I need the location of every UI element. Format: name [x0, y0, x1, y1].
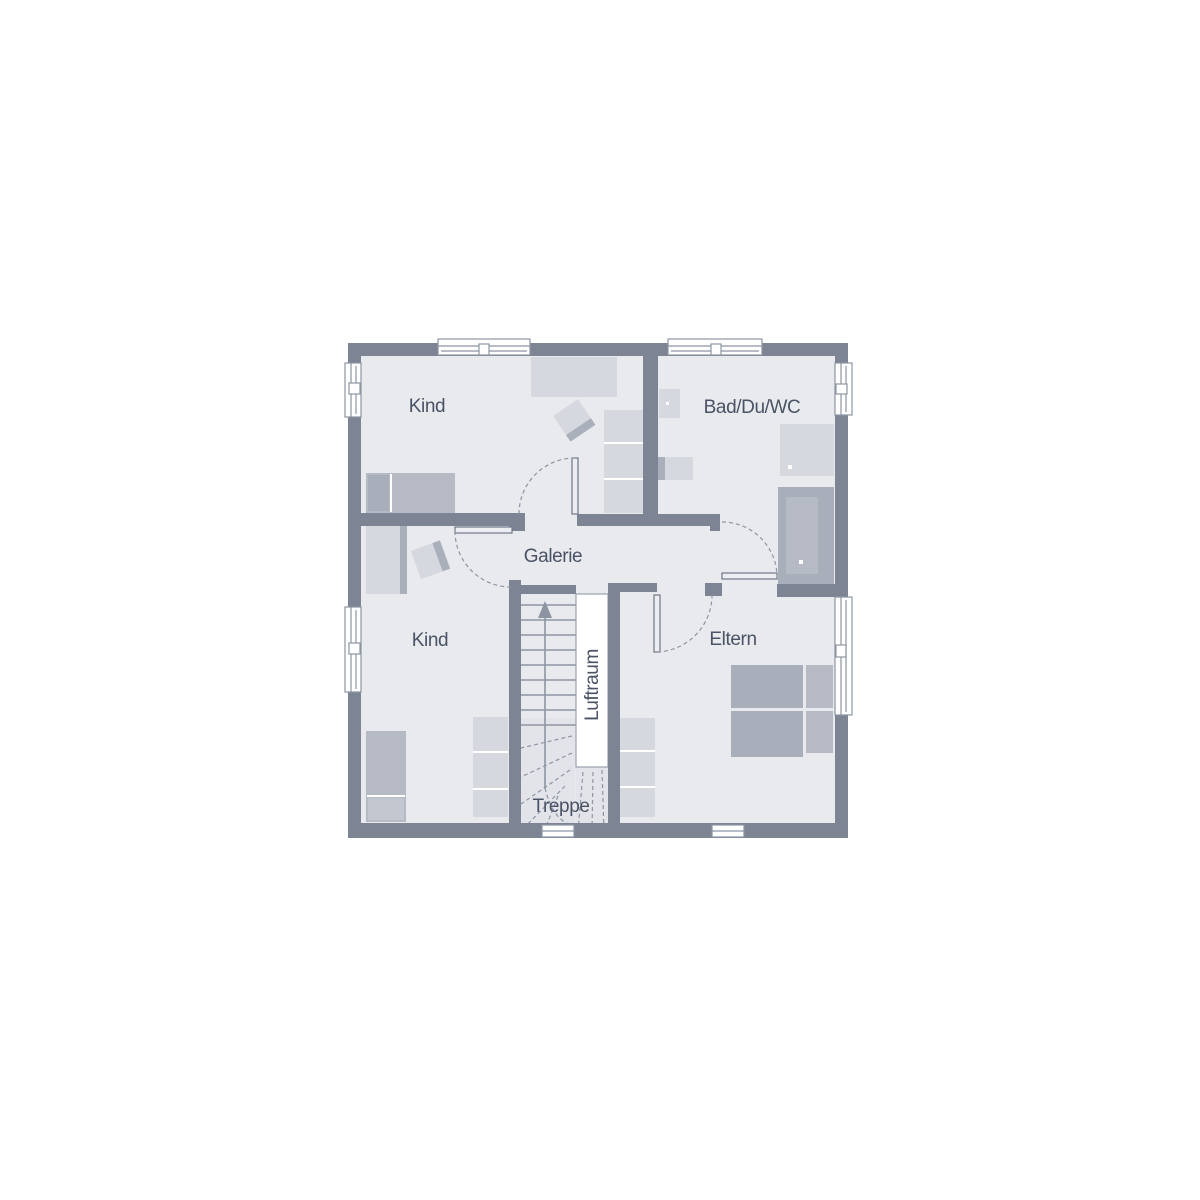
wall-bath-door-stub — [705, 583, 722, 596]
window-left-lower — [345, 607, 361, 692]
label-luftraum: Luftraum — [582, 649, 604, 721]
wardrobe — [604, 410, 643, 513]
window-bottom-right — [712, 825, 744, 837]
door-leaf — [572, 458, 578, 514]
wall-exterior-right — [835, 343, 848, 838]
wall-exterior-top — [348, 343, 848, 356]
floor-plan-page: Kind Bad/Du/WC Galerie Kind Eltern Luftr… — [0, 0, 1200, 1200]
window-left-upper — [345, 363, 361, 417]
window-handle — [479, 344, 489, 355]
label-kind-bottom: Kind — [412, 630, 448, 652]
door-leaf — [722, 573, 777, 579]
label-kind-top: Kind — [409, 396, 445, 418]
desk-edge — [400, 523, 407, 594]
window-handle — [836, 645, 846, 657]
wall-center-east-jamb — [710, 526, 720, 531]
door-leaf — [455, 527, 512, 533]
desk — [531, 357, 617, 397]
wall-exterior-bottom — [348, 823, 848, 838]
door-leaf — [654, 595, 660, 652]
wall-center-east — [577, 514, 720, 526]
sink-drain — [666, 402, 669, 405]
label-galerie: Galerie — [524, 546, 582, 568]
window-right-upper — [835, 363, 852, 415]
shower-drain — [788, 465, 792, 469]
window-handle — [349, 383, 360, 394]
bed-pillow — [368, 475, 389, 511]
window-handle — [349, 643, 360, 654]
wall-stair-left — [509, 580, 521, 823]
label-eltern: Eltern — [709, 629, 756, 651]
bed-mattress-right — [731, 711, 803, 757]
wall-center-west — [361, 513, 525, 526]
sink — [659, 389, 680, 418]
wardrobe — [618, 718, 655, 817]
window-top-right — [668, 339, 762, 355]
label-bad: Bad/Du/WC — [704, 397, 801, 419]
wall-under-bathtub — [777, 584, 835, 597]
wall-bathroom-left — [643, 356, 658, 517]
wall-stair-right — [608, 583, 620, 823]
window-top-left — [438, 339, 530, 355]
label-treppe: Treppe — [532, 796, 589, 818]
window-right-lower — [835, 597, 852, 715]
window-handle — [711, 344, 721, 355]
toilet-tank — [658, 457, 665, 480]
bed-pillow-right — [806, 711, 833, 753]
floor-plan-drawing — [0, 0, 1200, 1200]
wardrobe — [473, 717, 508, 817]
window-bottom-left — [542, 825, 574, 837]
wall-stair-top — [509, 585, 576, 594]
bed-pillow-left — [806, 665, 833, 708]
bed-mattress-left — [731, 665, 803, 708]
desk — [366, 523, 400, 594]
bathtub-drain — [799, 560, 803, 564]
toilet-bowl — [665, 457, 693, 480]
bed-pillow — [368, 798, 404, 820]
window-handle — [836, 384, 847, 394]
